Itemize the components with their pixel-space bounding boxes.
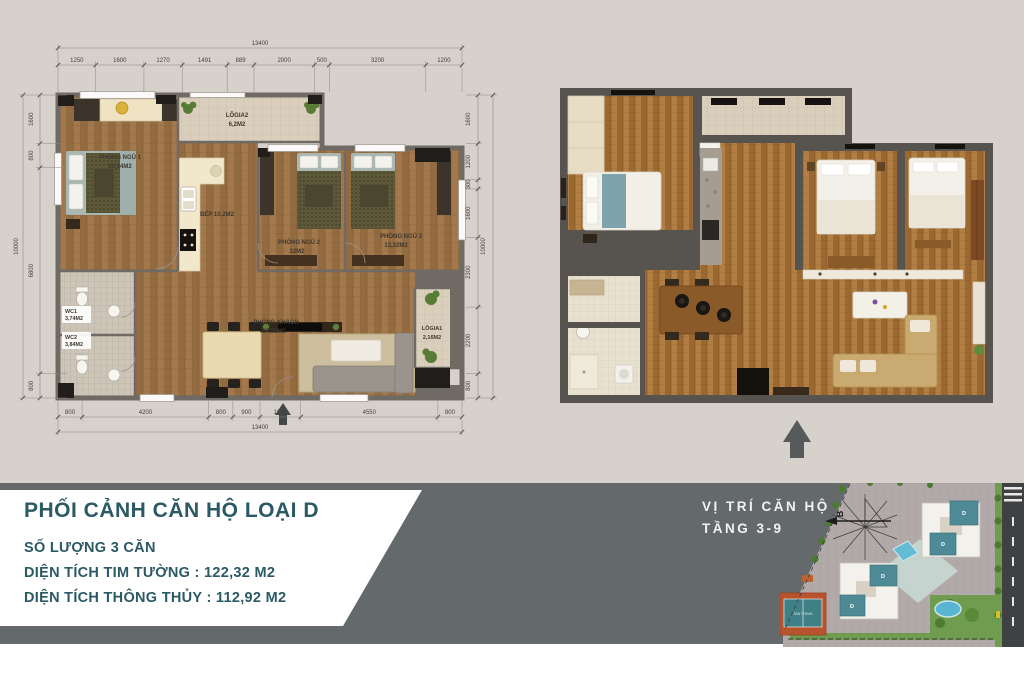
room-area: 2,16M2 (423, 335, 441, 341)
room-label: PHÒNG NGỦ 3 (380, 232, 423, 240)
info-net-area: DIỆN TÍCH THÔNG THỦY : 112,92 M2 (24, 590, 286, 606)
dim-label: 1491 (198, 58, 212, 64)
unit-d-label: D (881, 574, 885, 580)
location-caption: VỊ TRÍ CĂN HỘ TẦNG 3-9 (702, 496, 830, 540)
unit-d-label: D (962, 511, 966, 517)
room-label: LÔGIA2 (226, 111, 249, 119)
dim-label: 2300 (466, 265, 472, 279)
dim-label: 4200 (139, 410, 153, 416)
info-gross-area: DIỆN TÍCH TIM TƯỜNG : 122,32 M2 (24, 565, 275, 581)
room-area: 3,84M2 (65, 342, 83, 348)
dim-label: 1350 (274, 410, 288, 416)
room-label: WC1 (65, 309, 77, 315)
floor-plan-2d: PHÒNG NGỦ 1 20,14M2 LÔGIA2 6,2M2 BẾP 10,… (10, 35, 504, 450)
dim-label: 500 (317, 58, 328, 64)
unit-d-label: D (941, 542, 945, 548)
dim-label: 13400 (252, 41, 269, 47)
room-label: PHÒNG NGỦ 2 (278, 238, 321, 246)
dim-label: 300 (466, 179, 472, 190)
site-building-a (922, 501, 980, 557)
dim-label: 1600 (113, 58, 127, 64)
room-area: 37,52M2 (262, 329, 286, 335)
info-quantity: SỐ LƯỢNG 3 CĂN (24, 540, 156, 556)
location-caption-line2: TẦNG 3-9 (702, 518, 830, 540)
dim-label: 10000 (14, 237, 20, 254)
tennis-label: SÂN TENNIS (793, 612, 812, 616)
dim-label: 1200 (437, 58, 451, 64)
dim-label: 900 (241, 410, 252, 416)
dim-label: 800 (445, 410, 456, 416)
room-area: 6,2M2 (229, 122, 246, 128)
dim-label: 2000 (277, 58, 291, 64)
dim-label: 2200 (466, 333, 472, 347)
dim-label: 10000 (481, 237, 487, 254)
dim-label: 13400 (252, 425, 269, 431)
room-label: LÔGIA1 (422, 324, 442, 332)
dim-label: 1270 (156, 58, 170, 64)
room-label: PHÒNG KHÁCH (253, 318, 298, 326)
dim-label: 3200 (371, 58, 385, 64)
dim-label: 800 (65, 410, 76, 416)
dim-label: 889 (236, 58, 247, 64)
brochure-page: PHÒNG NGỦ 1 20,14M2 LÔGIA2 6,2M2 BẾP 10,… (0, 0, 1024, 687)
dim-label: 800 (216, 410, 227, 416)
location-caption-line1: VỊ TRÍ CĂN HỘ (702, 496, 830, 518)
dim-label: 800 (29, 380, 35, 391)
dim-label: 800 (466, 380, 472, 391)
compass-label: B (835, 510, 845, 517)
room-area: 3,74M2 (65, 316, 83, 322)
room-area: 12M2 (289, 249, 305, 255)
site-building-b (840, 563, 898, 619)
room-label: PHÒNG NGỦ 1 (99, 153, 142, 161)
entrance-arrow-3d (783, 420, 811, 458)
room-label: BẾP 10,2M2 (200, 211, 235, 218)
dim-label: 4550 (363, 410, 377, 416)
page-title: PHỐI CẢNH CĂN HỘ LOẠI D (24, 499, 319, 523)
dim-label: 1600 (29, 112, 35, 126)
dim-label: 1600 (466, 206, 472, 220)
floor-plan-3d (545, 80, 1015, 460)
dim-label: 1250 (70, 58, 84, 64)
room-area: 20,14M2 (108, 164, 132, 170)
room-label: WC2 (65, 335, 77, 341)
dim-label: 1600 (466, 112, 472, 126)
unit-d-label: D (850, 604, 854, 610)
dim-label: 800 (29, 150, 35, 161)
room-area: 13,32M2 (384, 243, 408, 249)
dim-label: 1200 (466, 154, 472, 168)
dim-label: 6800 (29, 263, 35, 277)
